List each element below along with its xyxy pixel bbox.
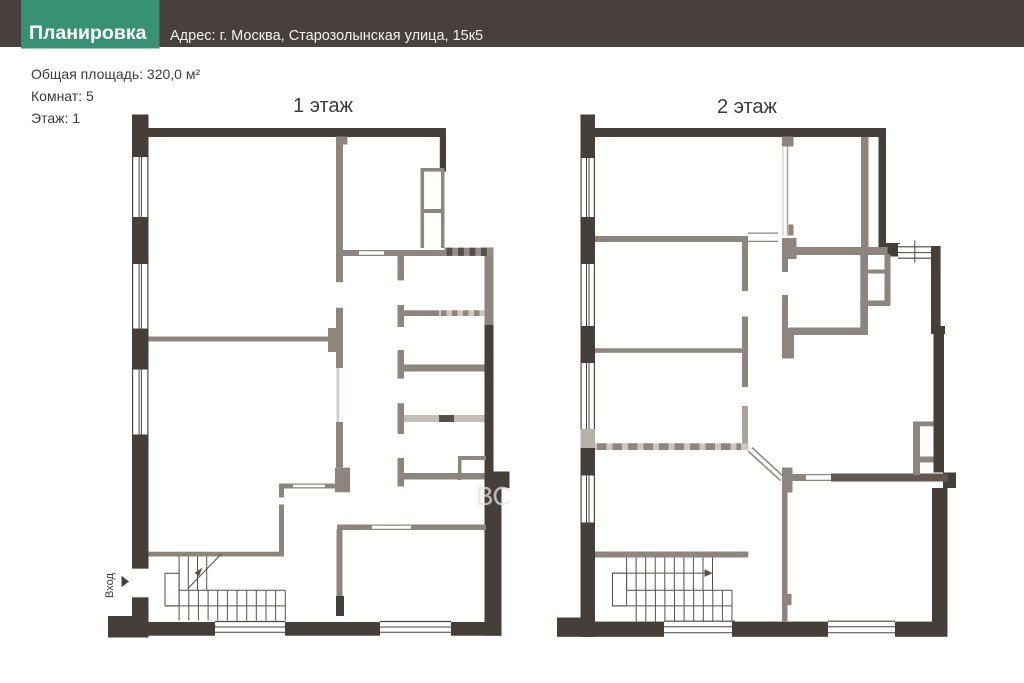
- svg-text:Вход: Вход: [104, 573, 116, 598]
- svg-text:Этаж: 1: Этаж: 1: [31, 110, 80, 126]
- svg-text:Комнат: 5: Комнат: 5: [31, 88, 94, 104]
- svg-text:Планировка: Планировка: [29, 22, 147, 44]
- svg-text:2 этаж: 2 этаж: [717, 96, 778, 118]
- svg-text:Адрес: г. Москва, Старозолынск: Адрес: г. Москва, Старозолынская улица, …: [170, 28, 483, 44]
- svg-text:Общая площадь: 320,0 м²: Общая площадь: 320,0 м²: [31, 66, 200, 82]
- svg-text:1 этаж: 1 этаж: [293, 95, 354, 117]
